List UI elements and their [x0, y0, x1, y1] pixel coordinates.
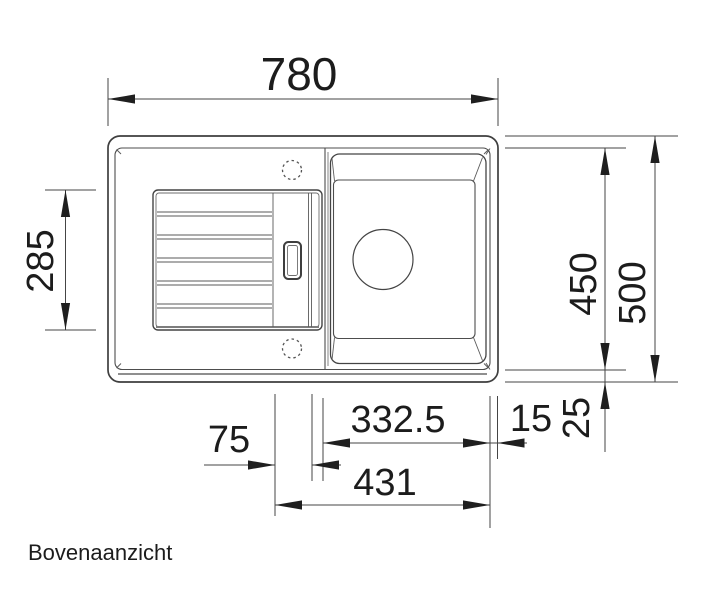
- dim-label-15: 15: [510, 400, 552, 438]
- dim-500-lines: [650, 136, 659, 382]
- tap-hole-top: [283, 161, 302, 180]
- drainboard-grooves: [157, 212, 272, 308]
- drainboard: [153, 190, 322, 330]
- dim-label-450: 450: [565, 252, 603, 315]
- tap-hole-bottom: [283, 339, 302, 358]
- dim-label-431: 431: [353, 464, 416, 502]
- dim-label-332-5: 332.5: [350, 401, 445, 439]
- dim-75-lines: [204, 460, 341, 469]
- drain-circle: [353, 230, 413, 290]
- sink-outline: [108, 136, 498, 382]
- drawing-title: Bovenaanzicht: [28, 540, 172, 566]
- bowl: [325, 149, 490, 370]
- bowl-corner-chamfers: [332, 158, 483, 361]
- dim-label-75: 75: [208, 421, 250, 459]
- overflow-slot: [284, 242, 301, 279]
- dim-label-25: 25: [558, 397, 596, 439]
- dim-label-500: 500: [614, 261, 652, 324]
- dim-label-285: 285: [22, 229, 60, 292]
- drainboard-strip: [273, 193, 312, 327]
- drawing-canvas: 780 285 450 500 25 332.5 15 75 431 Boven…: [0, 0, 727, 600]
- dim-label-780: 780: [261, 51, 338, 97]
